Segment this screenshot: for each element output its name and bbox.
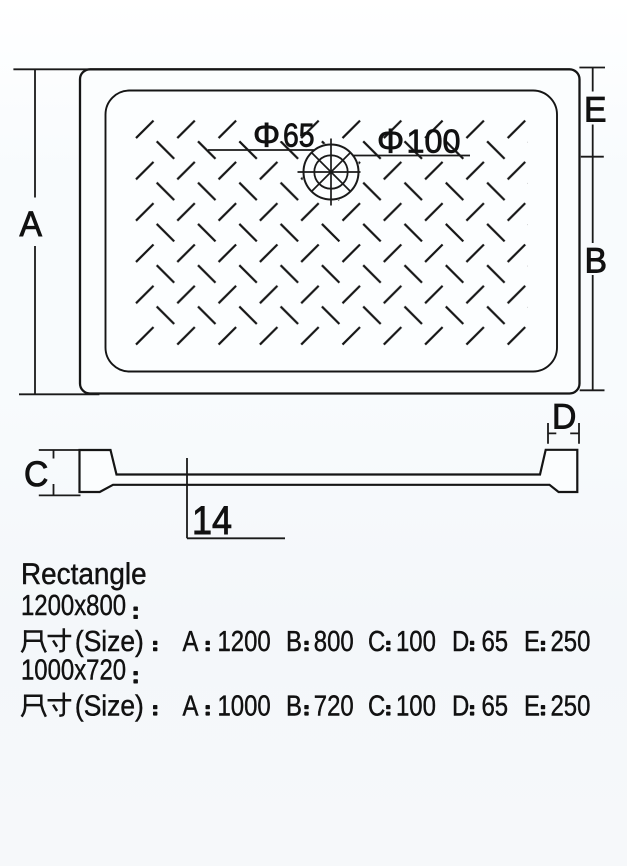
svg-text:B: B — [585, 241, 608, 281]
svg-text:250: 250 — [551, 690, 591, 722]
svg-text:B: B — [286, 690, 302, 722]
svg-text:100: 100 — [407, 123, 461, 160]
svg-text:720: 720 — [314, 690, 354, 722]
svg-text:Rectangle: Rectangle — [21, 558, 147, 591]
svg-text:65: 65 — [482, 690, 509, 722]
svg-text:Φ: Φ — [253, 117, 280, 155]
svg-text:(Size): (Size) — [75, 690, 144, 722]
svg-text:D: D — [452, 626, 469, 658]
svg-text:1200: 1200 — [218, 626, 271, 658]
svg-text:E: E — [584, 89, 607, 129]
svg-text:14: 14 — [192, 499, 232, 543]
svg-text:(Size): (Size) — [75, 626, 144, 658]
svg-text:1200x800: 1200x800 — [21, 590, 126, 622]
svg-text:65: 65 — [283, 117, 315, 154]
svg-text:100: 100 — [396, 626, 436, 658]
svg-text:C: C — [368, 690, 385, 722]
svg-text:800: 800 — [314, 626, 354, 658]
svg-text:100: 100 — [396, 690, 436, 722]
svg-text:B: B — [286, 626, 302, 658]
svg-text:C: C — [368, 626, 385, 658]
svg-text:D: D — [452, 690, 469, 722]
svg-text:A: A — [183, 690, 200, 722]
svg-text:1000: 1000 — [218, 690, 271, 722]
svg-text:A: A — [183, 626, 200, 658]
svg-text:Φ: Φ — [377, 123, 404, 161]
svg-text:C: C — [24, 454, 48, 494]
svg-text:A: A — [20, 204, 43, 244]
svg-text:250: 250 — [551, 626, 591, 658]
svg-text:E: E — [524, 690, 540, 722]
svg-text:65: 65 — [482, 626, 509, 658]
svg-text:1000x720: 1000x720 — [21, 655, 126, 687]
svg-text:D: D — [552, 397, 576, 437]
svg-text:E: E — [524, 626, 540, 658]
